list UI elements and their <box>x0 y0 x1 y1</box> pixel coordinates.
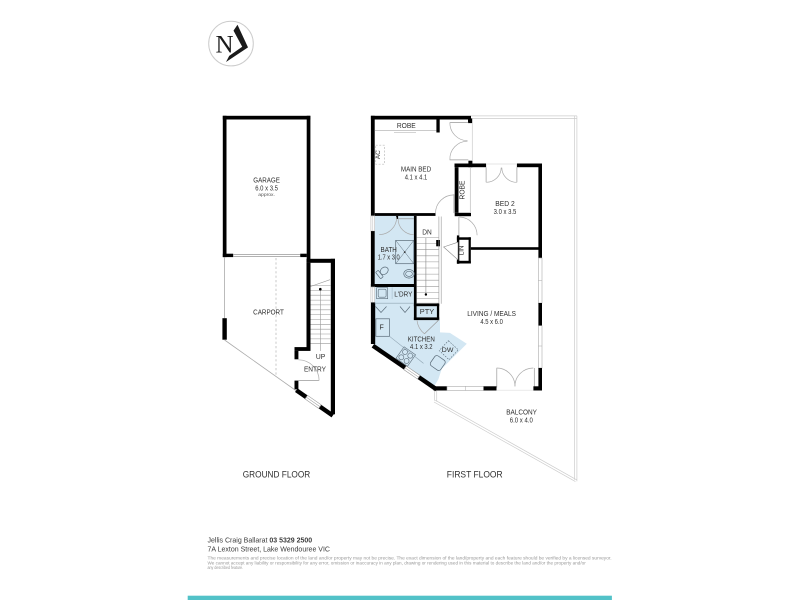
svg-text:KITCHEN: KITCHEN <box>408 335 435 344</box>
svg-text:approx.: approx. <box>258 192 275 198</box>
svg-text:1.7 x 3.0: 1.7 x 3.0 <box>378 255 400 262</box>
svg-text:7A Lexton Street, Lake Wendour: 7A Lexton Street, Lake Wendouree VIC <box>208 546 330 553</box>
svg-text:6.0 x 3.5: 6.0 x 3.5 <box>255 185 278 192</box>
svg-text:ROBE: ROBE <box>457 180 466 199</box>
svg-text:DN: DN <box>422 230 432 237</box>
svg-text:BATH: BATH <box>381 245 397 254</box>
svg-text:4.1 x 4.1: 4.1 x 4.1 <box>405 175 428 182</box>
svg-text:CARPORT: CARPORT <box>253 308 284 317</box>
svg-text:MAIN BED: MAIN BED <box>401 165 431 174</box>
svg-text:Jellis Craig Ballarat 03 5329: Jellis Craig Ballarat 03 5329 2500 <box>208 537 313 544</box>
svg-text:PTY: PTY <box>420 307 434 316</box>
svg-text:LIVING / MEALS: LIVING / MEALS <box>467 309 516 318</box>
svg-text:UP: UP <box>316 354 326 361</box>
svg-text:L'DRY: L'DRY <box>394 289 412 298</box>
svg-text:BALCONY: BALCONY <box>506 408 537 417</box>
svg-text:BED 2: BED 2 <box>495 199 514 208</box>
svg-text:FIRST FLOOR: FIRST FLOOR <box>447 470 503 481</box>
svg-text:ENTRY: ENTRY <box>304 367 326 374</box>
svg-text:N: N <box>216 31 234 58</box>
svg-text:any described feature.: any described feature. <box>208 565 244 570</box>
svg-text:3.0 x 3.5: 3.0 x 3.5 <box>494 209 517 216</box>
svg-text:4.1 x 3.2: 4.1 x 3.2 <box>410 344 433 351</box>
svg-text:We cannot accept any liability: We cannot accept any liability or respon… <box>208 560 587 565</box>
svg-text:LIN: LIN <box>460 246 466 256</box>
svg-text:ROBE: ROBE <box>397 121 416 130</box>
svg-text:GARAGE: GARAGE <box>253 176 280 185</box>
svg-text:6.0 x 4.0: 6.0 x 4.0 <box>510 417 533 424</box>
svg-text:4.5 x 6.0: 4.5 x 6.0 <box>480 319 503 326</box>
svg-text:F: F <box>380 325 384 332</box>
svg-text:DW: DW <box>442 347 455 354</box>
svg-text:GROUND FLOOR: GROUND FLOOR <box>243 470 311 481</box>
svg-text:AC: AC <box>375 150 382 159</box>
